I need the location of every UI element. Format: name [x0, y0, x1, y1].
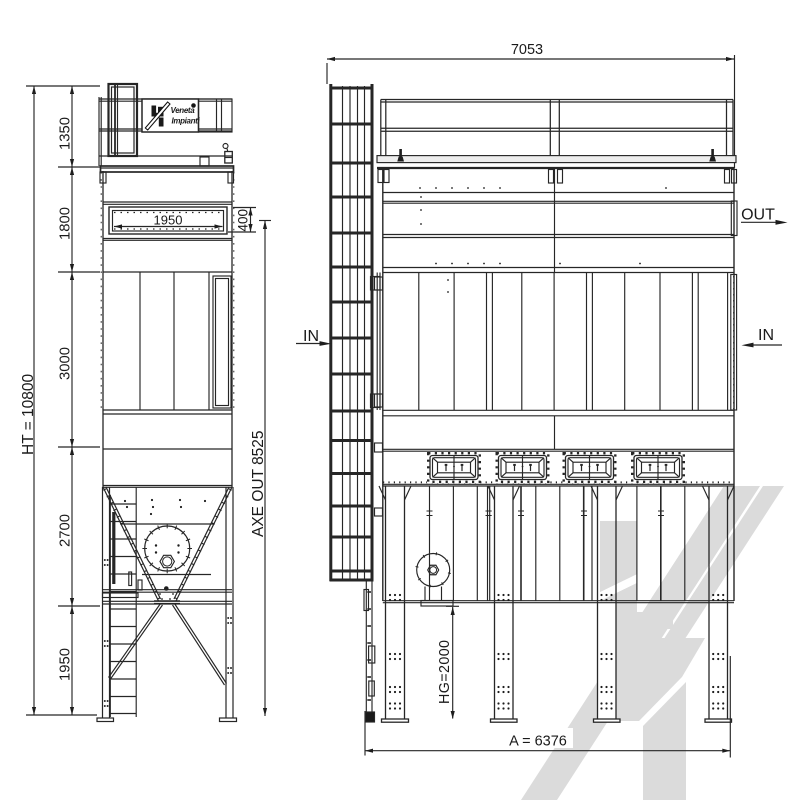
svg-text:1800: 1800 [58, 207, 74, 240]
svg-text:IN: IN [758, 327, 774, 344]
svg-text:1950: 1950 [58, 648, 74, 681]
svg-text:1350: 1350 [58, 117, 74, 150]
svg-text:Veneta: Veneta [171, 106, 196, 115]
svg-text:400: 400 [236, 209, 251, 232]
svg-text:1950: 1950 [154, 213, 183, 228]
svg-text:HT = 10800: HT = 10800 [20, 373, 37, 455]
svg-text:HG=2000: HG=2000 [437, 640, 453, 704]
svg-text:AXE OUT 8525: AXE OUT 8525 [250, 430, 267, 537]
svg-text:A = 6376: A = 6376 [509, 734, 567, 750]
svg-text:OUT: OUT [741, 207, 775, 224]
svg-text:3000: 3000 [58, 347, 74, 380]
svg-text:IN: IN [303, 328, 319, 345]
svg-text:2700: 2700 [58, 514, 74, 547]
svg-text:Impianti: Impianti [172, 117, 201, 126]
svg-text:7053: 7053 [511, 42, 543, 58]
